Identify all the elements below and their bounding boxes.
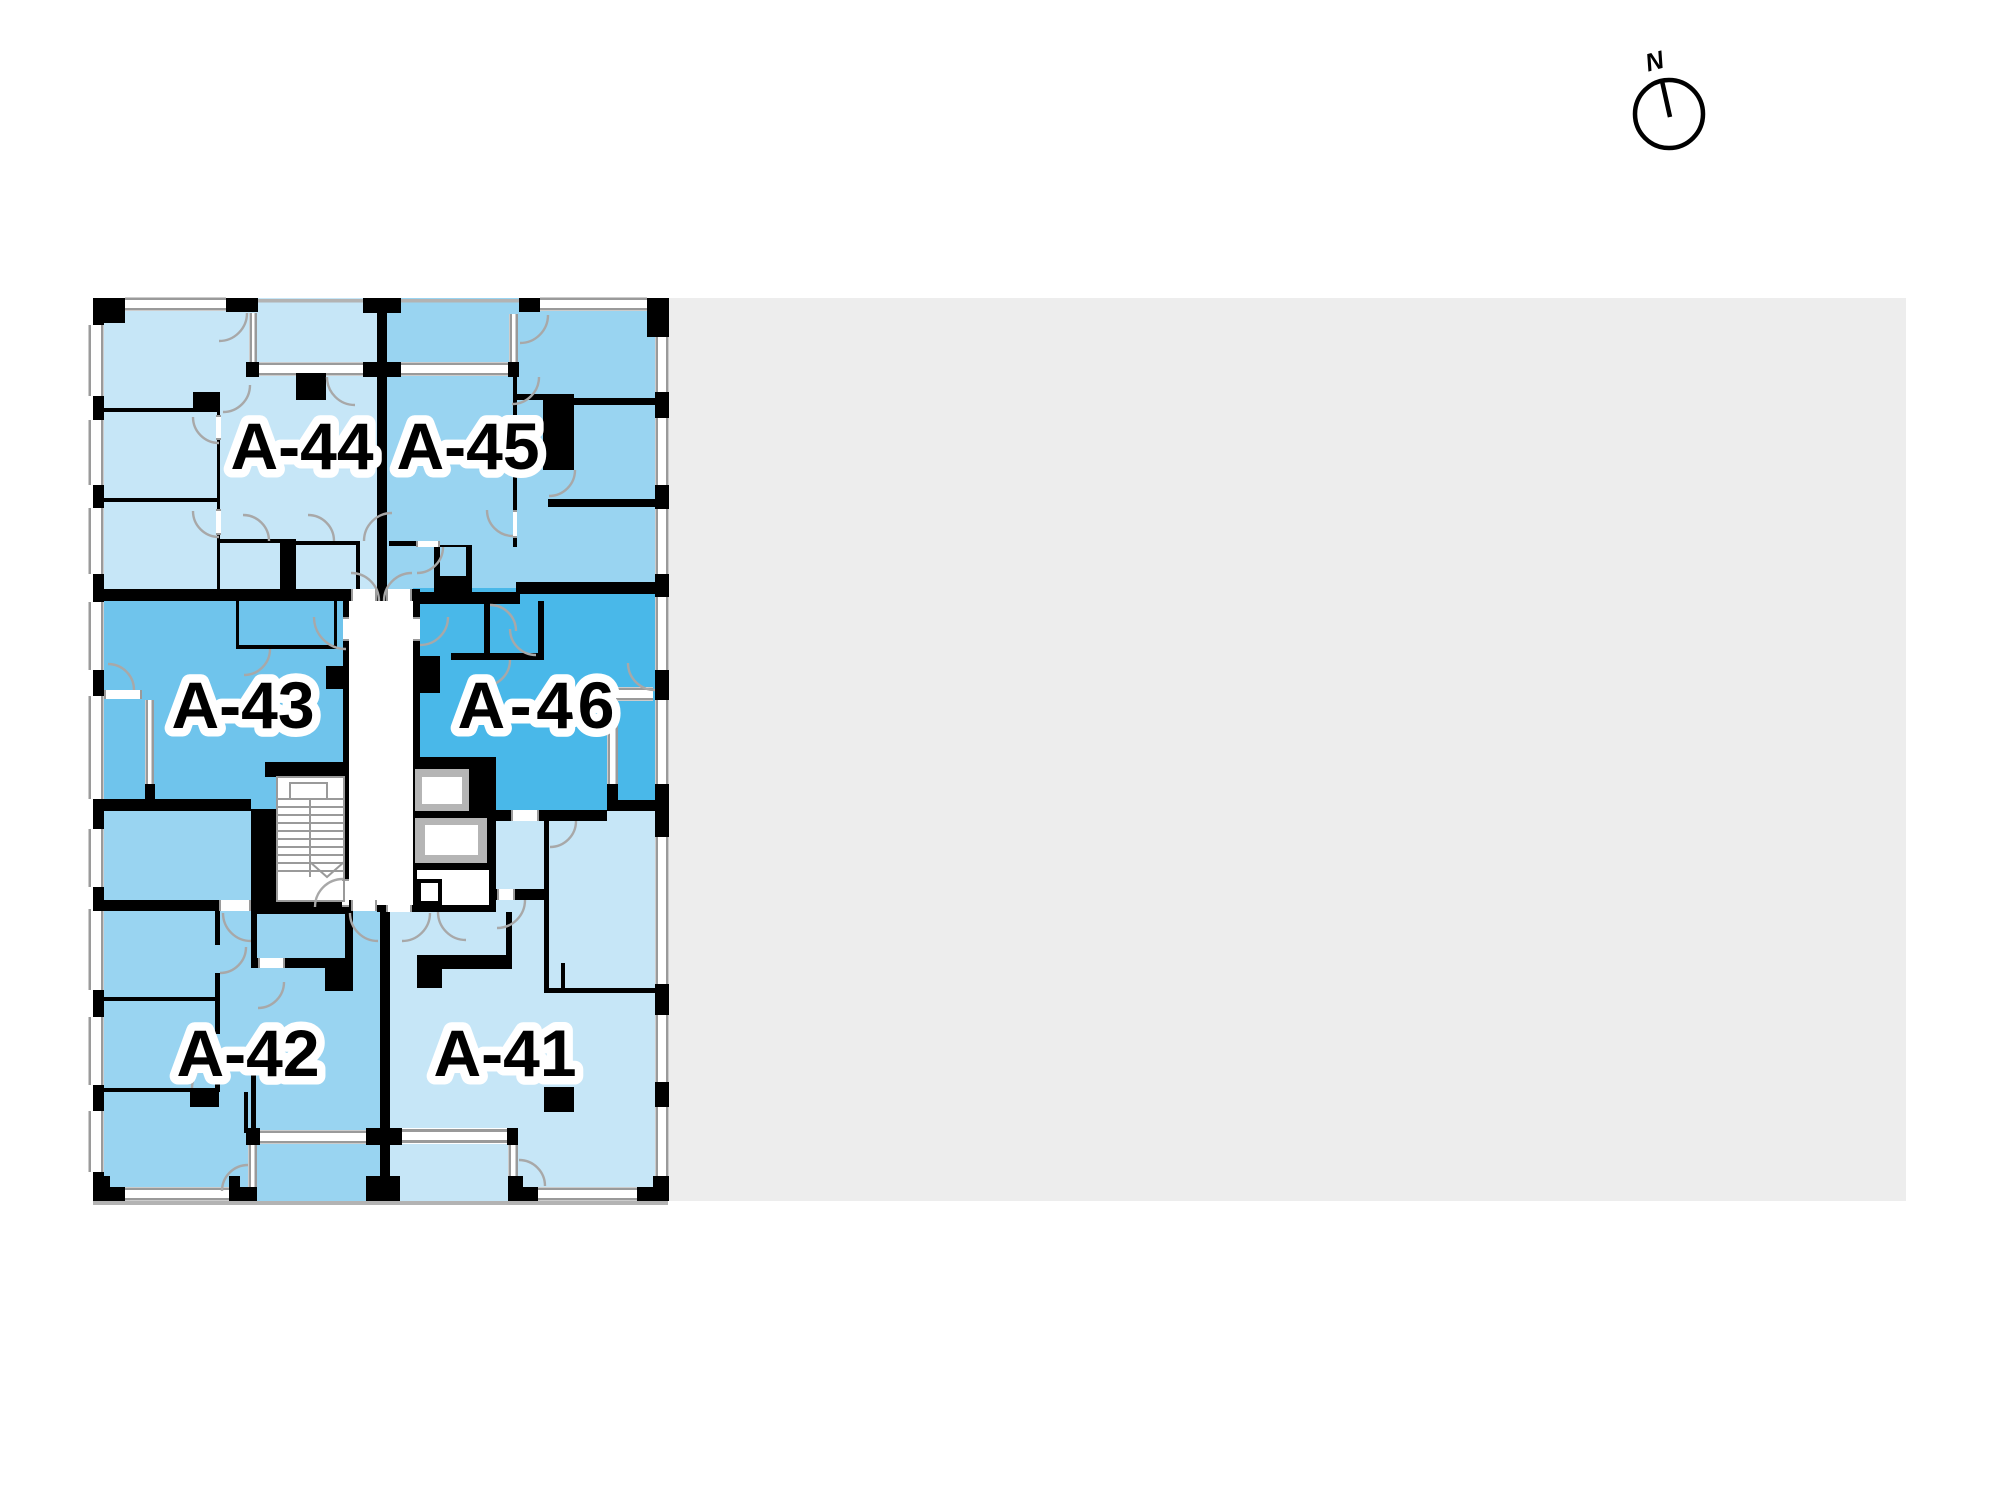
svg-text:A-46: A-46	[458, 668, 615, 742]
svg-text:A-43: A-43	[171, 668, 314, 742]
svg-text:A-41: A-41	[433, 1016, 576, 1090]
svg-text:A-45: A-45	[396, 409, 539, 483]
svg-text:A-42: A-42	[176, 1016, 319, 1090]
svg-text:A-44: A-44	[230, 409, 373, 483]
